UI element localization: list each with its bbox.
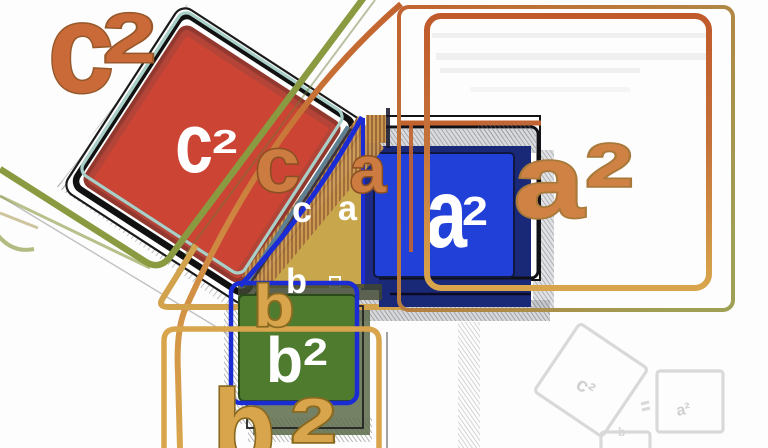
svg-text:a: a bbox=[338, 189, 358, 228]
svg-text:a: a bbox=[514, 124, 585, 240]
svg-text:2: 2 bbox=[462, 188, 488, 234]
svg-text:2: 2 bbox=[103, 0, 156, 77]
svg-text:2: 2 bbox=[291, 387, 336, 448]
svg-text:b: b bbox=[618, 425, 625, 439]
svg-text:c: c bbox=[175, 96, 213, 190]
svg-text:a²: a² bbox=[675, 400, 692, 420]
svg-text:c²: c² bbox=[572, 373, 599, 401]
svg-text:b: b bbox=[213, 367, 275, 448]
svg-text:b: b bbox=[254, 274, 294, 339]
svg-text:2: 2 bbox=[303, 332, 328, 374]
svg-text:2: 2 bbox=[212, 123, 238, 160]
svg-text:c: c bbox=[292, 189, 312, 230]
svg-text:2: 2 bbox=[586, 132, 633, 199]
